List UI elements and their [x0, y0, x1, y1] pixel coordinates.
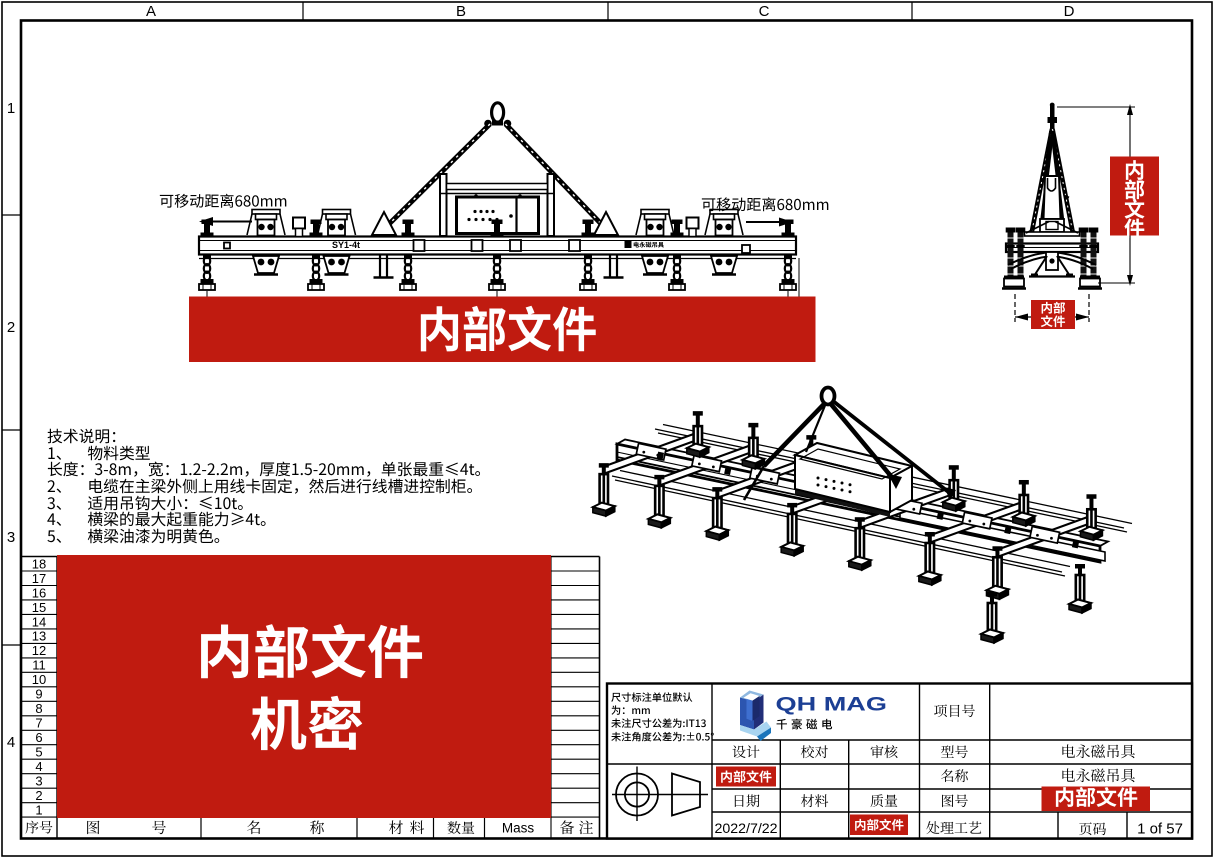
svg-text:12: 12 — [32, 643, 46, 658]
svg-text:5: 5 — [35, 745, 42, 760]
svg-text:3: 3 — [35, 774, 42, 789]
svg-text:1: 1 — [7, 100, 15, 117]
svg-text:6: 6 — [35, 730, 42, 745]
svg-text:14: 14 — [32, 614, 46, 629]
svg-text:3: 3 — [7, 529, 15, 546]
svg-text:1 of 57: 1 of 57 — [1137, 821, 1183, 838]
svg-text:18: 18 — [32, 556, 46, 571]
svg-text:8: 8 — [35, 701, 42, 716]
svg-text:2: 2 — [35, 788, 42, 803]
svg-text:16: 16 — [32, 585, 46, 600]
svg-text:1: 1 — [35, 803, 42, 818]
svg-text:4: 4 — [7, 734, 15, 751]
svg-text:17: 17 — [32, 571, 46, 586]
svg-text:9: 9 — [35, 687, 42, 702]
svg-text:2: 2 — [7, 319, 15, 336]
svg-text:13: 13 — [32, 629, 46, 644]
svg-text:7: 7 — [35, 716, 42, 731]
svg-text:A: A — [146, 3, 156, 20]
svg-text:SY1-4t: SY1-4t — [332, 240, 360, 250]
svg-text:Mass: Mass — [502, 821, 535, 836]
svg-text:11: 11 — [32, 658, 46, 673]
svg-text:10: 10 — [32, 672, 46, 687]
svg-text:B: B — [456, 3, 466, 20]
svg-text:2022/7/22: 2022/7/22 — [714, 821, 777, 837]
svg-text:4: 4 — [35, 759, 42, 774]
svg-text:15: 15 — [32, 600, 46, 615]
svg-text:D: D — [1064, 3, 1075, 20]
svg-text:QH MAG: QH MAG — [776, 695, 888, 716]
svg-text:C: C — [759, 3, 770, 20]
